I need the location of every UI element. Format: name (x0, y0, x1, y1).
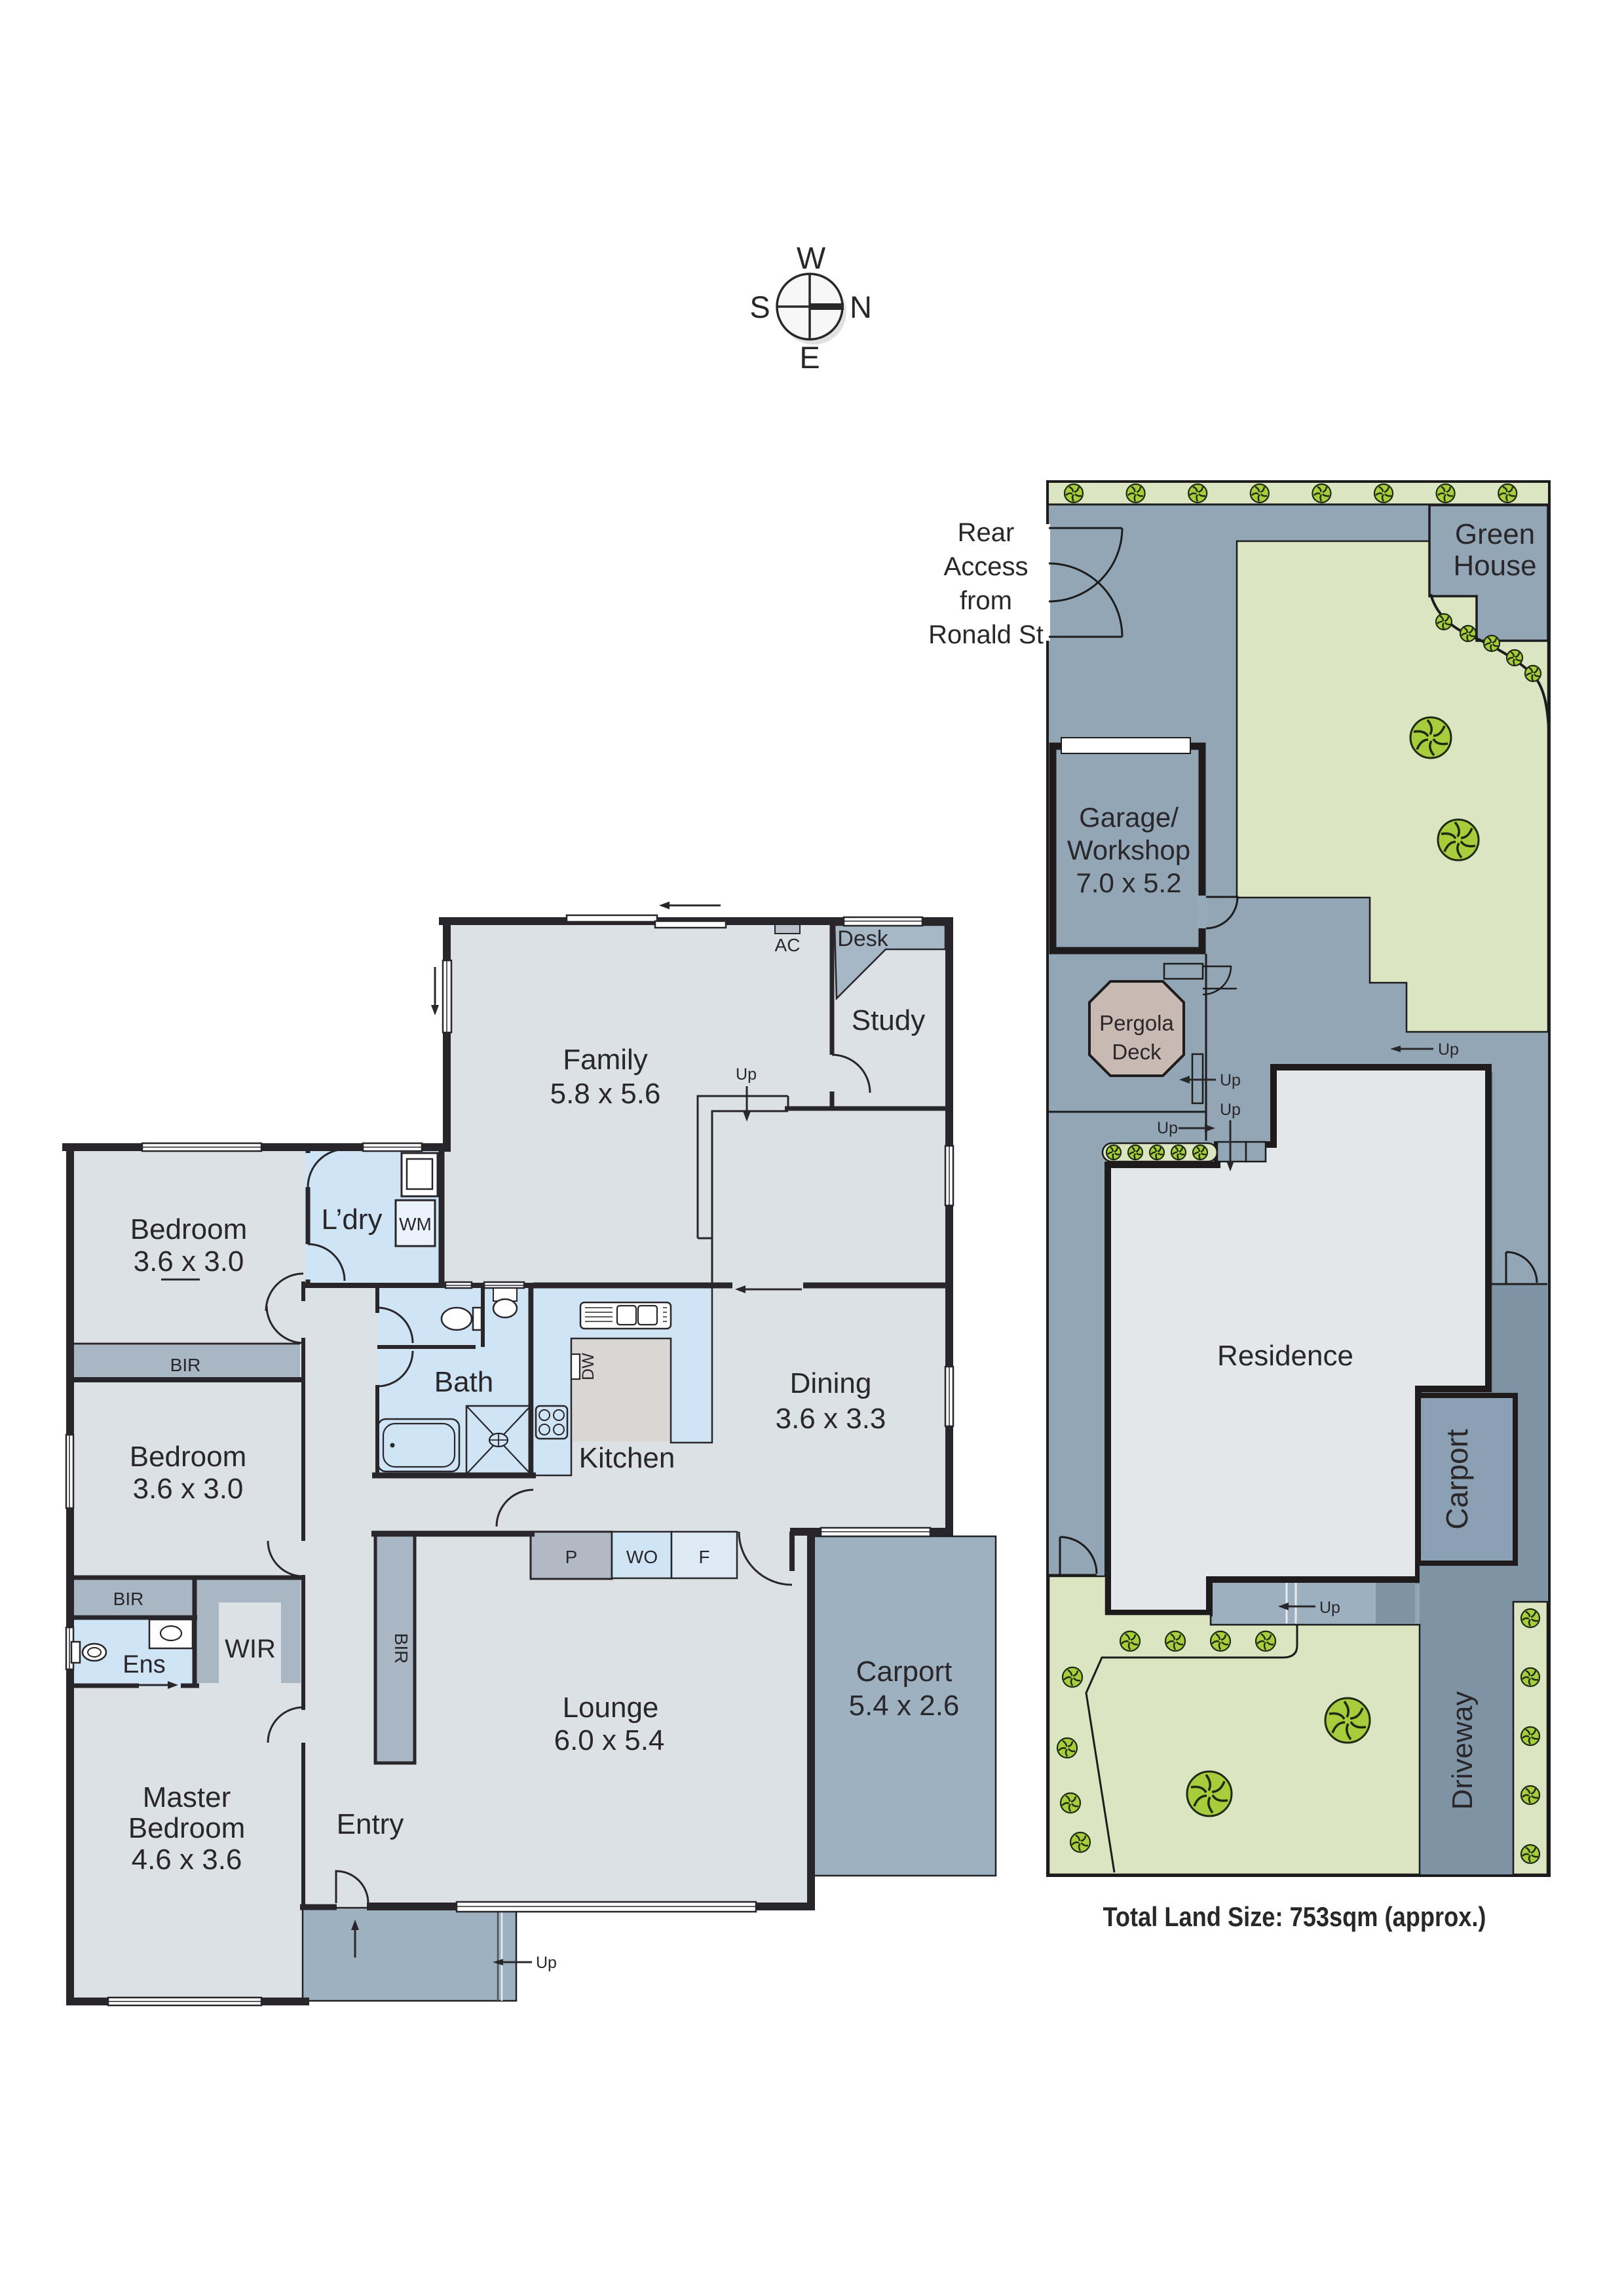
svg-text:L’dry: L’dry (322, 1203, 383, 1236)
svg-text:Driveway: Driveway (1446, 1692, 1479, 1810)
svg-text:Deck: Deck (1112, 1040, 1161, 1064)
svg-text:Up: Up (736, 1065, 757, 1084)
svg-text:3.6 x 3.3: 3.6 x 3.3 (776, 1403, 886, 1435)
svg-text:from: from (960, 586, 1012, 615)
svg-text:Entry: Entry (337, 1808, 404, 1840)
svg-text:DW: DW (579, 1353, 597, 1380)
svg-text:Carport: Carport (1440, 1429, 1474, 1530)
svg-text:5.4 x 2.6: 5.4 x 2.6 (849, 1690, 960, 1722)
svg-text:S: S (749, 290, 770, 324)
svg-text:Carport: Carport (856, 1656, 953, 1688)
svg-text:BIR: BIR (113, 1589, 144, 1609)
svg-text:Ens: Ens (123, 1651, 165, 1678)
svg-text:WO: WO (626, 1547, 658, 1567)
svg-text:Bath: Bath (434, 1366, 494, 1398)
svg-text:N: N (850, 290, 872, 324)
svg-text:7.0 x 5.2: 7.0 x 5.2 (1076, 867, 1181, 898)
svg-text:Up: Up (1220, 1071, 1241, 1090)
svg-text:WM: WM (399, 1214, 432, 1234)
svg-text:W: W (797, 240, 826, 275)
svg-text:WIR: WIR (225, 1635, 276, 1663)
svg-text:5.8 x 5.6: 5.8 x 5.6 (550, 1078, 661, 1110)
svg-text:P: P (565, 1547, 578, 1567)
svg-text:AC: AC (775, 935, 801, 955)
svg-text:Access: Access (944, 552, 1029, 581)
svg-text:Green: Green (1455, 518, 1535, 550)
svg-text:Dining: Dining (790, 1367, 872, 1399)
svg-text:Total Land Size: 753sqm (appro: Total Land Size: 753sqm (approx.) (1103, 1901, 1486, 1932)
svg-text:E: E (799, 340, 820, 375)
svg-text:Family: Family (563, 1044, 648, 1076)
svg-text:Bedroom: Bedroom (130, 1441, 247, 1473)
svg-text:BIR: BIR (391, 1633, 411, 1664)
svg-text:Up: Up (1438, 1040, 1459, 1059)
svg-text:Up: Up (1157, 1119, 1178, 1137)
svg-text:Garage/: Garage/ (1079, 802, 1179, 833)
svg-text:Bedroom: Bedroom (130, 1213, 248, 1245)
svg-text:House: House (1453, 550, 1536, 582)
svg-text:Workshop: Workshop (1067, 835, 1190, 865)
svg-text:3.6 x 3.0: 3.6 x 3.0 (134, 1245, 244, 1278)
svg-text:6.0 x 5.4: 6.0 x 5.4 (554, 1724, 665, 1756)
svg-text:Pergola: Pergola (1099, 1011, 1174, 1035)
svg-text:4.6 x 3.6: 4.6 x 3.6 (132, 1844, 242, 1876)
svg-text:Bedroom: Bedroom (128, 1812, 246, 1844)
svg-text:Up: Up (1319, 1599, 1340, 1617)
svg-text:Ronald St: Ronald St (928, 620, 1044, 649)
svg-text:Master: Master (143, 1781, 231, 1813)
svg-text:Desk: Desk (837, 926, 888, 951)
svg-text:BIR: BIR (170, 1355, 201, 1375)
svg-text:Lounge: Lounge (563, 1692, 659, 1724)
svg-text:Study: Study (852, 1004, 926, 1036)
svg-text:F: F (698, 1547, 709, 1567)
svg-text:Residence: Residence (1217, 1340, 1353, 1372)
svg-text:Up: Up (1220, 1101, 1241, 1119)
svg-text:Rear: Rear (958, 518, 1015, 547)
svg-text:Kitchen: Kitchen (579, 1442, 675, 1474)
svg-text:3.6 x 3.0: 3.6 x 3.0 (133, 1473, 244, 1505)
svg-text:Up: Up (536, 1954, 557, 1972)
